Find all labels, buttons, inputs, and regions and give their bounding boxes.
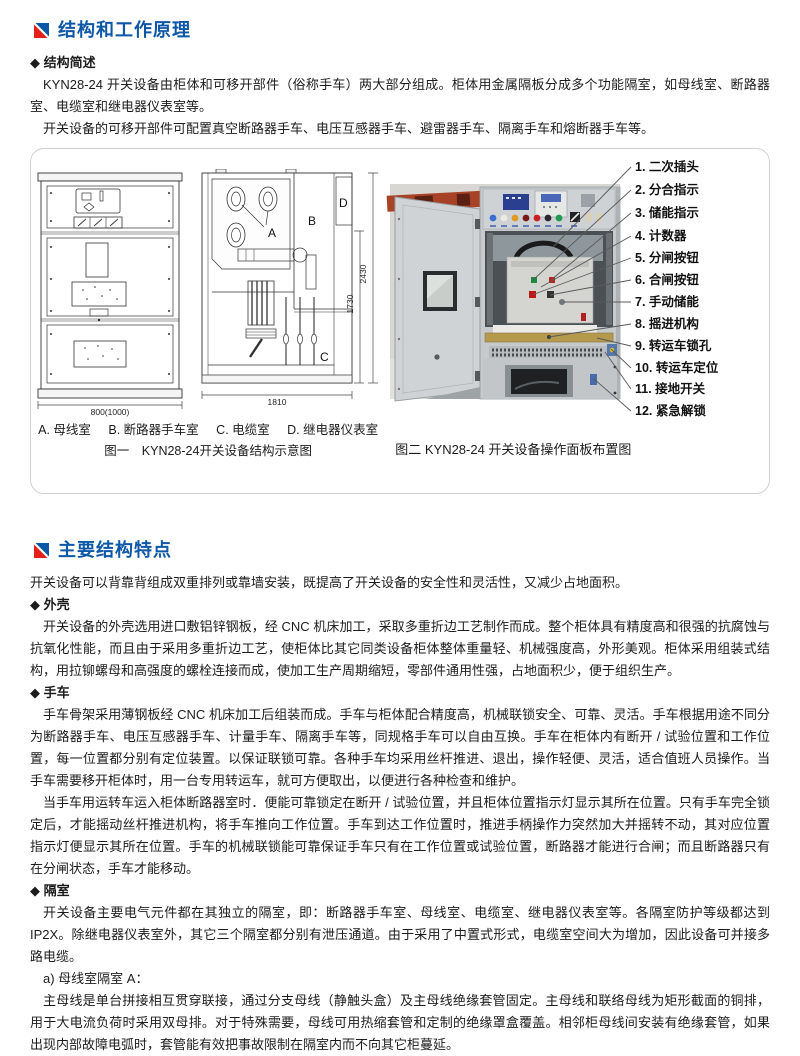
subheading-trolley: ◆ 手车 [30,682,770,704]
figure1-legend: A. 母线室 B. 断路器手车室 C. 电缆室 D. 继电器仪表室 [31,421,385,439]
busbar-paragraph: 主母线是单台拼接相互贯穿联接，通过分支母线（静触头盒）及主母线绝缘套管固定。主母… [30,990,770,1056]
busbar-heading: a) 母线室隔室 A： [30,968,770,990]
section-marker-icon [34,543,49,558]
callout-6: 6. 合闸按钮 [635,272,699,287]
document-page: 结构和工作原理 ◆ 结构简述 KYN28-24 开关设备由柜体和可移开部件（俗称… [0,0,800,1056]
figure-panel: 800(1000) [30,148,770,494]
callout-11: 11. 接地开关 [635,381,706,396]
dim-side-width: 1810 [268,397,287,407]
label-compartment-b: B [308,214,316,228]
figure1-structure-diagram: 800(1000) [31,149,385,493]
subheading-compartment: ◆ 隔室 [30,880,770,902]
callout-labels: 1. 二次插头 2. 分合指示 3. 储能指示 4. 计数器 5. 分闸按钮 6… [635,159,719,418]
callout-7: 7. 手动储能 [635,294,699,309]
figure2-caption: 图二 KYN28-24 开关设备操作面板布置图 [395,439,631,461]
callout-10: 10. 转运车定位 [635,360,719,375]
legend-item-a: A. 母线室 [38,423,91,437]
legend-item-c: C. 电缆室 [216,423,269,437]
callout-3: 3. 储能指示 [635,205,699,220]
subheading-structure-brief: ◆ 结构简述 [30,52,770,74]
section2-header: 主要结构特点 [34,538,770,562]
callout-1: 1. 二次插头 [635,159,699,174]
subheading-enclosure: ◆ 外壳 [30,594,770,616]
section1-paragraph-2: 开关设备的可移开部件可配置真空断路器手车、电压互感器手车、避雷器手车、隔离手车和… [30,118,770,140]
photo-image [387,184,620,401]
figure2-operation-panel: 1. 二次插头 2. 分合指示 3. 储能指示 4. 计数器 5. 分闸按钮 6… [385,149,769,493]
front-view [38,173,182,398]
switchgear-structure-drawing: 800(1000) [32,169,384,417]
dim-front-width: 800(1000) [91,407,130,417]
side-view: A B C D 1810 1730 2430 [202,169,378,407]
callout-2: 2. 分合指示 [635,182,699,197]
section1-title: 结构和工作原理 [58,18,191,42]
dim-height-inner: 1730 [345,294,355,313]
operation-panel-photo: 1. 二次插头 2. 分合指示 3. 储能指示 4. 计数器 5. 分闸按钮 6… [385,149,757,435]
section-marker-icon [34,23,49,38]
figure1-caption: 图一 KYN28-24开关设备结构示意图 [104,441,312,461]
label-compartment-a: A [268,226,276,240]
callout-4: 4. 计数器 [635,228,687,243]
trolley-paragraph-1: 手车骨架采用薄钢板经 CNC 机床加工后组装而成。手车与柜体配合精度高，机械联锁… [30,704,770,792]
legend-item-d: D. 继电器仪表室 [287,423,378,437]
compartment-paragraph: 开关设备主要电气元件都在其独立的隔室，即：断路器手车室、母线室、电缆室、继电器仪… [30,902,770,968]
label-compartment-d: D [339,196,348,210]
section2-intro: 开关设备可以背靠背组成双重排列或靠墙安装，既提高了开关设备的安全性和灵活性，又减… [30,572,770,594]
section2-title: 主要结构特点 [58,538,172,562]
callout-12: 12. 紧急解锁 [635,403,706,418]
enclosure-paragraph: 开关设备的外壳选用进口敷铝锌钢板，经 CNC 机床加工，采取多重折边工艺制作而成… [30,616,770,682]
section1-paragraph-1: KYN28-24 开关设备由柜体和可移开部件（俗称手车）两大部分组成。柜体用金属… [30,74,770,118]
legend-item-b: B. 断路器手车室 [108,423,198,437]
callout-9: 9. 转运车锁孔 [635,338,712,353]
callout-5: 5. 分闸按钮 [635,250,699,265]
trolley-paragraph-2: 当手车用运转车运入柜体断路器室时．便能可靠锁定在断开 / 试验位置，并且柜体位置… [30,792,770,880]
label-compartment-c: C [320,350,329,364]
section1-header: 结构和工作原理 [34,18,770,42]
dim-height-outer: 2430 [358,264,368,283]
callout-8: 8. 摇进机构 [635,316,699,331]
